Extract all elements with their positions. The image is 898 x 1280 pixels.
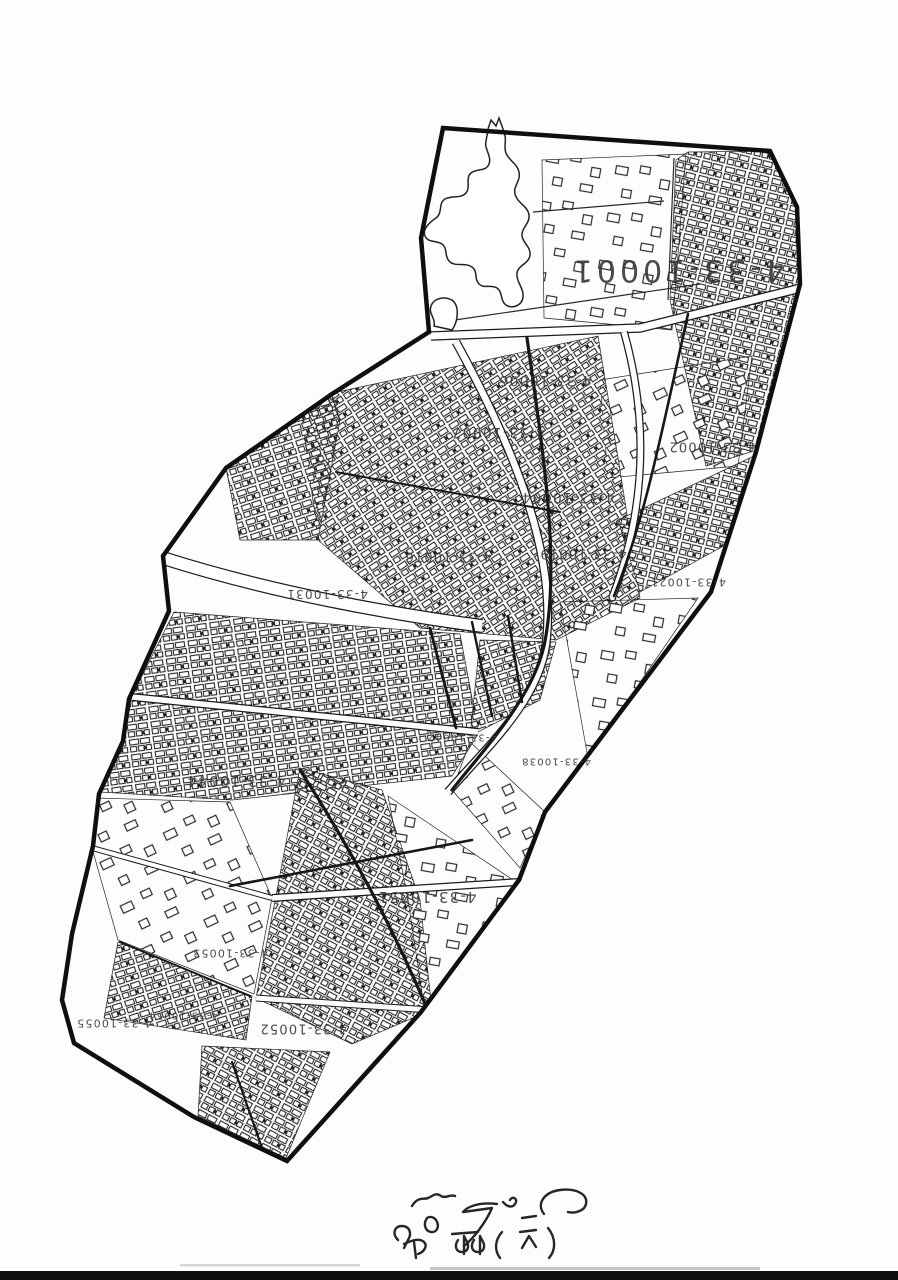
scan-edge-band [0,1264,898,1280]
handwritten-annotation [395,1190,587,1258]
scanned-page: 4-33-10001 4-33-10006 4-33-10007 4-33-10… [0,0,898,1280]
waterway-outline-south [430,298,457,330]
cadastral-map-drawing [0,0,898,1280]
